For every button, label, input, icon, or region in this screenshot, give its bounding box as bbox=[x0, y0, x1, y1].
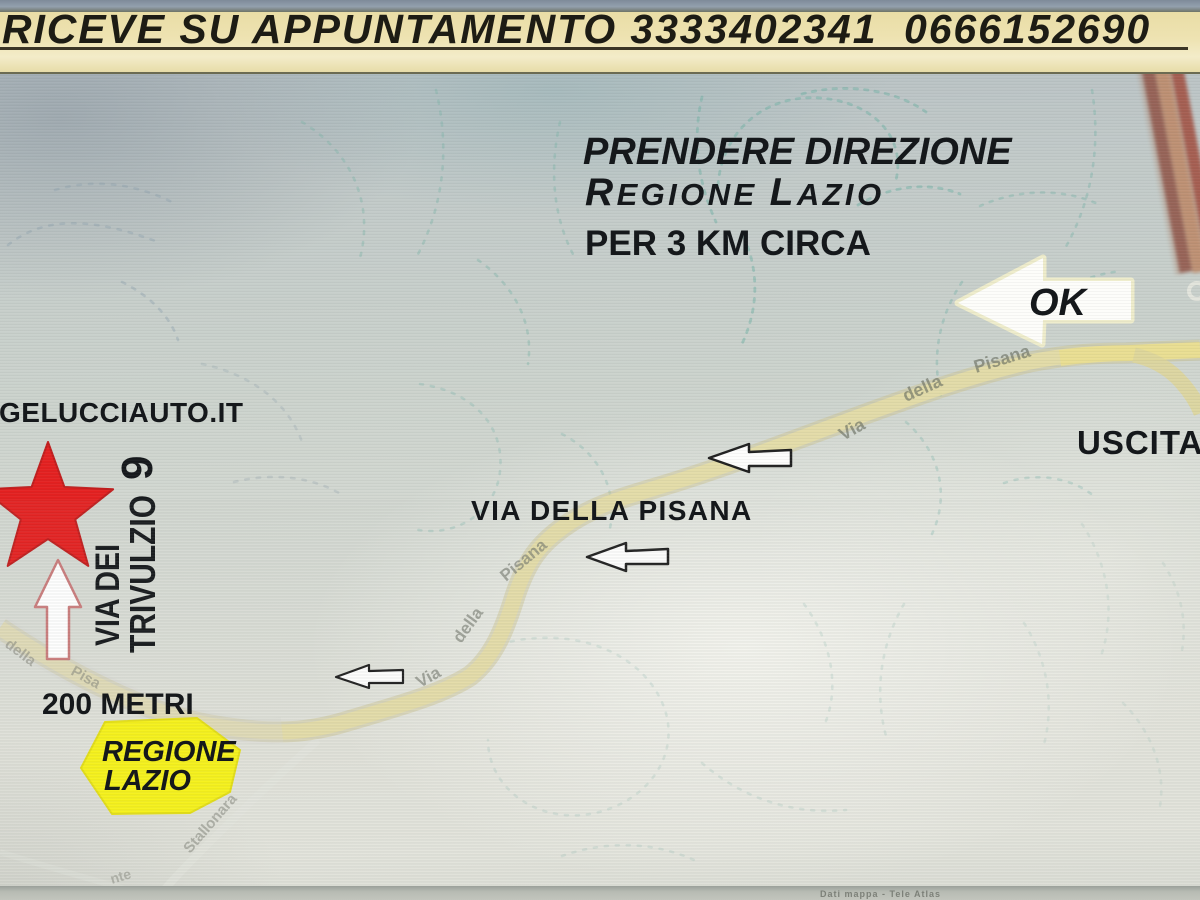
svg-text:della: della bbox=[449, 603, 487, 646]
svg-text:TRIVULZIO: TRIVULZIO bbox=[122, 495, 163, 653]
svg-text:nte: nte bbox=[108, 865, 133, 887]
svg-text:9: 9 bbox=[113, 456, 162, 480]
